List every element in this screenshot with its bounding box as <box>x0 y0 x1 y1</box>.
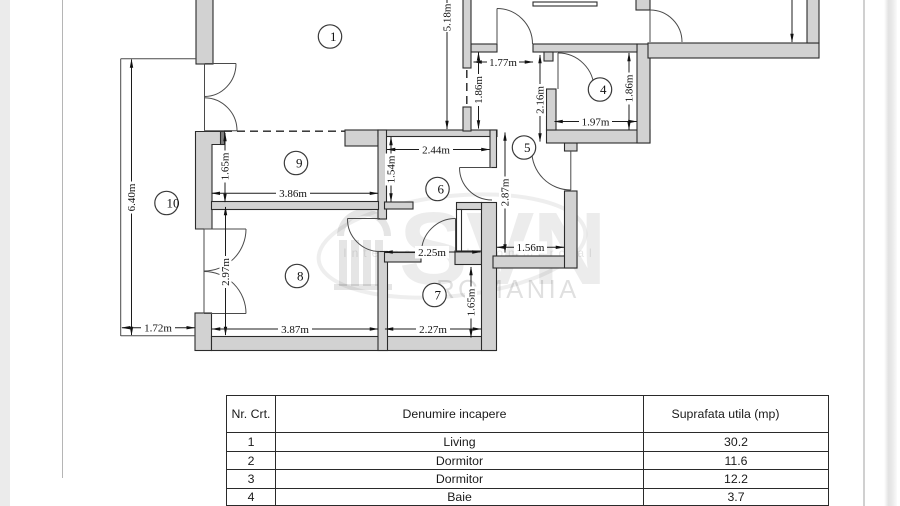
svg-text:4: 4 <box>600 82 607 97</box>
svg-text:6: 6 <box>438 182 445 197</box>
svg-text:1.97m: 1.97m <box>582 116 610 128</box>
svg-text:3.87m: 3.87m <box>281 324 309 336</box>
svg-text:9: 9 <box>296 156 303 171</box>
svg-text:1.65m: 1.65m <box>220 152 232 180</box>
svg-text:1: 1 <box>330 29 337 44</box>
svg-text:1.77m: 1.77m <box>489 57 517 69</box>
svg-text:2.16m: 2.16m <box>535 86 547 114</box>
svg-text:1.65m: 1.65m <box>466 288 478 316</box>
svg-text:3.86m: 3.86m <box>279 188 307 200</box>
svg-text:2.44m: 2.44m <box>422 144 450 156</box>
svg-text:1.86m: 1.86m <box>473 76 485 104</box>
svg-text:10: 10 <box>167 196 180 211</box>
svg-text:2.25m: 2.25m <box>418 247 446 259</box>
svg-text:2.97m: 2.97m <box>220 258 232 286</box>
svg-text:ROMANIA: ROMANIA <box>436 276 580 304</box>
svg-text:5.18m: 5.18m <box>442 3 454 31</box>
svg-text:1.72m: 1.72m <box>144 323 172 335</box>
svg-text:8: 8 <box>297 269 304 284</box>
svg-text:6.40m: 6.40m <box>126 183 138 211</box>
svg-text:7: 7 <box>435 288 442 303</box>
svg-text:2.27m: 2.27m <box>419 324 447 336</box>
svg-text:1.56m: 1.56m <box>517 242 545 254</box>
svg-text:5: 5 <box>524 140 531 155</box>
svg-text:2.87m: 2.87m <box>500 178 512 206</box>
svg-text:1.54m: 1.54m <box>386 155 398 183</box>
svg-text:1.86m: 1.86m <box>624 74 636 102</box>
